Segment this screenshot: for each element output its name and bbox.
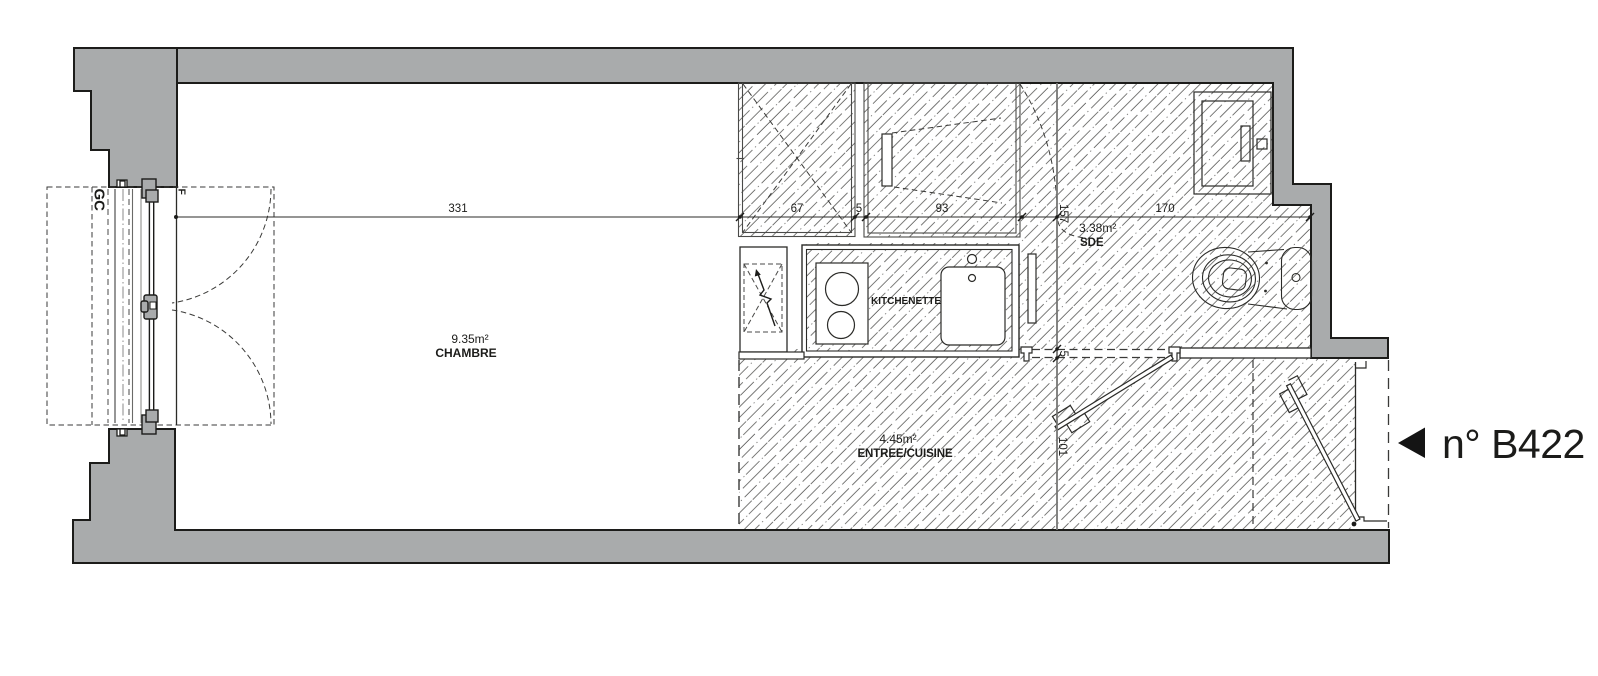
svg-text:4.45m²: 4.45m² (879, 432, 916, 446)
svg-text:F: F (176, 189, 188, 196)
svg-text:67: 67 (791, 203, 804, 215)
svg-text:KITCHENETTE: KITCHENETTE (871, 296, 941, 307)
svg-text:157: 157 (1057, 204, 1069, 223)
svg-text:SDE: SDE (1080, 237, 1104, 249)
svg-text:5: 5 (1057, 351, 1069, 357)
svg-text:5: 5 (856, 203, 862, 215)
svg-text:CHAMBRE: CHAMBRE (435, 346, 496, 360)
svg-text:170: 170 (1155, 203, 1174, 215)
svg-text:GC: GC (91, 189, 108, 212)
svg-text:n° B422: n° B422 (1442, 421, 1585, 467)
svg-text:3.38m²: 3.38m² (1079, 221, 1116, 235)
svg-text:93: 93 (936, 203, 949, 215)
svg-text:331: 331 (448, 203, 467, 215)
svg-text:ENTREE/CUISINE: ENTREE/CUISINE (857, 448, 953, 460)
svg-text:101: 101 (1056, 437, 1068, 456)
svg-text:9.35m²: 9.35m² (451, 332, 488, 346)
